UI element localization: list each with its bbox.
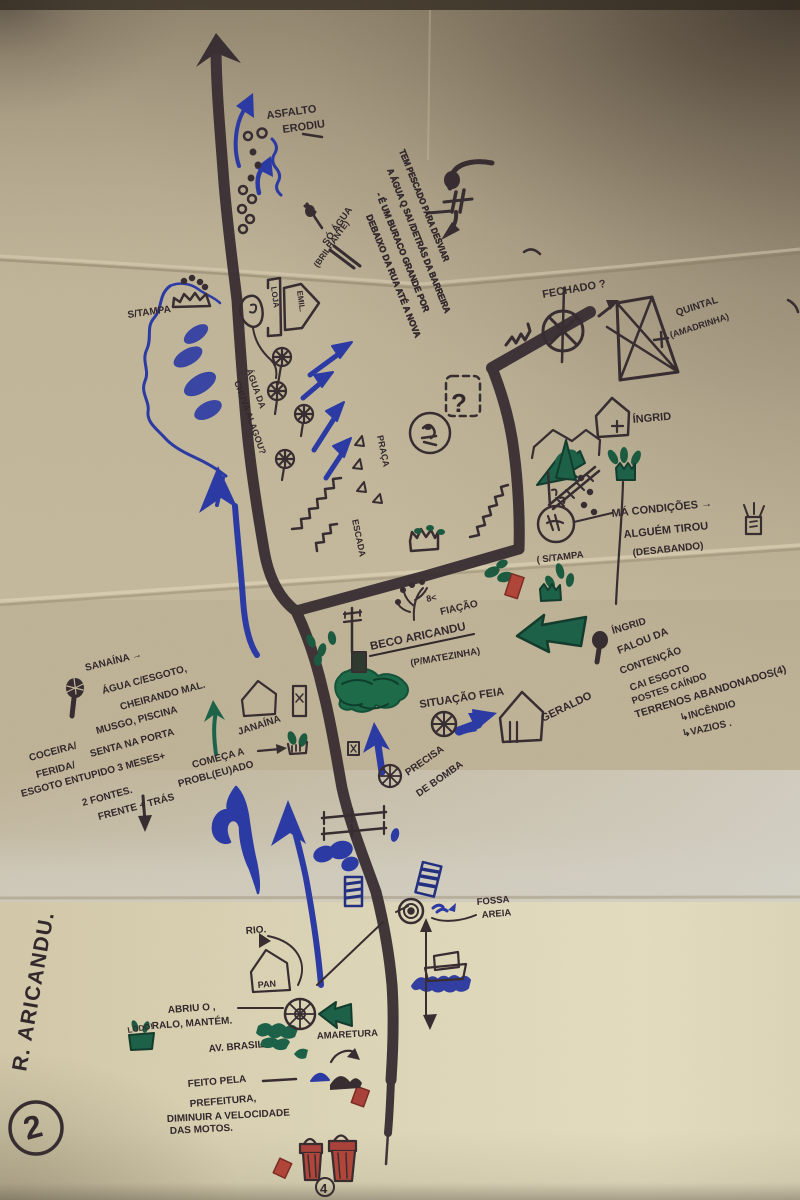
svg-text:?: ? — [451, 388, 467, 418]
svg-text:8<: 8< — [425, 592, 437, 604]
svg-text:PAN: PAN — [257, 978, 276, 990]
svg-text:RIO.: RIO. — [245, 924, 267, 937]
svg-text:4: 4 — [320, 1181, 328, 1196]
